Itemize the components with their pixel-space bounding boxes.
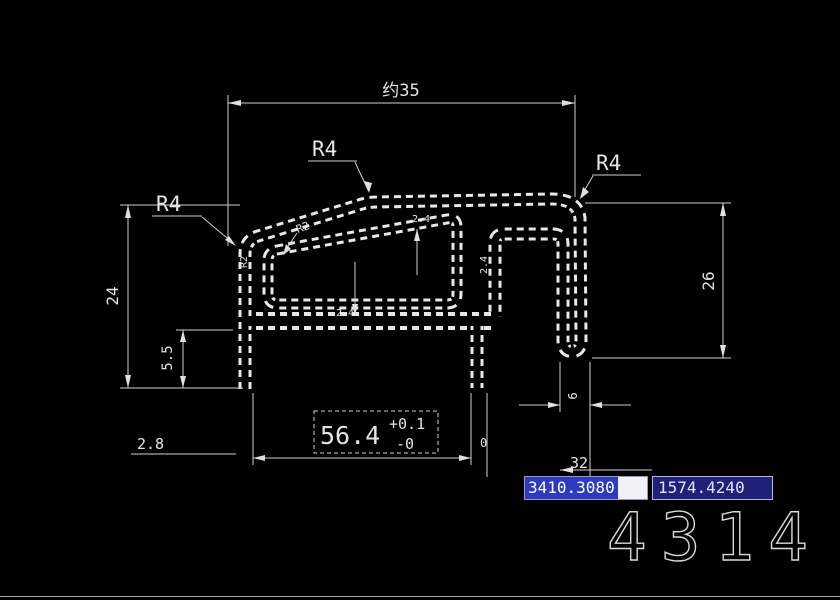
profile-outline <box>244 199 581 389</box>
radius-label-right: R4 <box>596 151 621 175</box>
radius-label-left: R4 <box>156 192 181 216</box>
part-number-text: 4314 <box>607 499 822 576</box>
thickness-bottom-wall-text: 2.4 <box>336 308 354 319</box>
dim-bottom-left-text: 2.8 <box>137 435 164 453</box>
dim-right-foot-text: 6 <box>566 392 580 399</box>
dimension-lines <box>120 95 731 477</box>
cad-canvas[interactable]: 约35 24 26 5.5 2.8 56.4 +0.1 -0 0 6 32 R4… <box>0 0 840 600</box>
coord-y-value: 1574.4240 <box>658 478 745 497</box>
radius-label-top: R4 <box>312 137 337 161</box>
coord-input-x[interactable]: 3410.3080 <box>524 476 648 500</box>
dim-bottom-tol-lower: -0 <box>396 435 414 453</box>
fillet-label-leg: R2 <box>239 256 250 268</box>
dim-bottom-width-text: 56.4 <box>320 421 380 450</box>
dim-left-height-text: 24 <box>103 286 122 305</box>
dim-left-foot-text: 5.5 <box>160 345 176 370</box>
dimension-arrows <box>125 100 726 473</box>
coord-input-y[interactable]: 1574.4240 <box>652 476 773 500</box>
coord-x-value: 3410.3080 <box>525 477 618 499</box>
dim-right-offset-text: 32 <box>570 454 588 472</box>
dim-right-height-text: 26 <box>699 271 718 290</box>
thickness-right-wall-text: 2.4 <box>479 256 490 274</box>
dim-top-width-text: 约35 <box>382 81 419 101</box>
dim-bottom-tol-upper: +0.1 <box>389 415 425 433</box>
thickness-top-wall-text: 2.4 <box>412 214 430 225</box>
dim-zero-marker-text: 0 <box>480 436 487 450</box>
command-area-divider <box>0 596 840 597</box>
profile-drawing: 约35 24 26 5.5 2.8 56.4 +0.1 -0 0 6 32 R4… <box>0 0 840 600</box>
